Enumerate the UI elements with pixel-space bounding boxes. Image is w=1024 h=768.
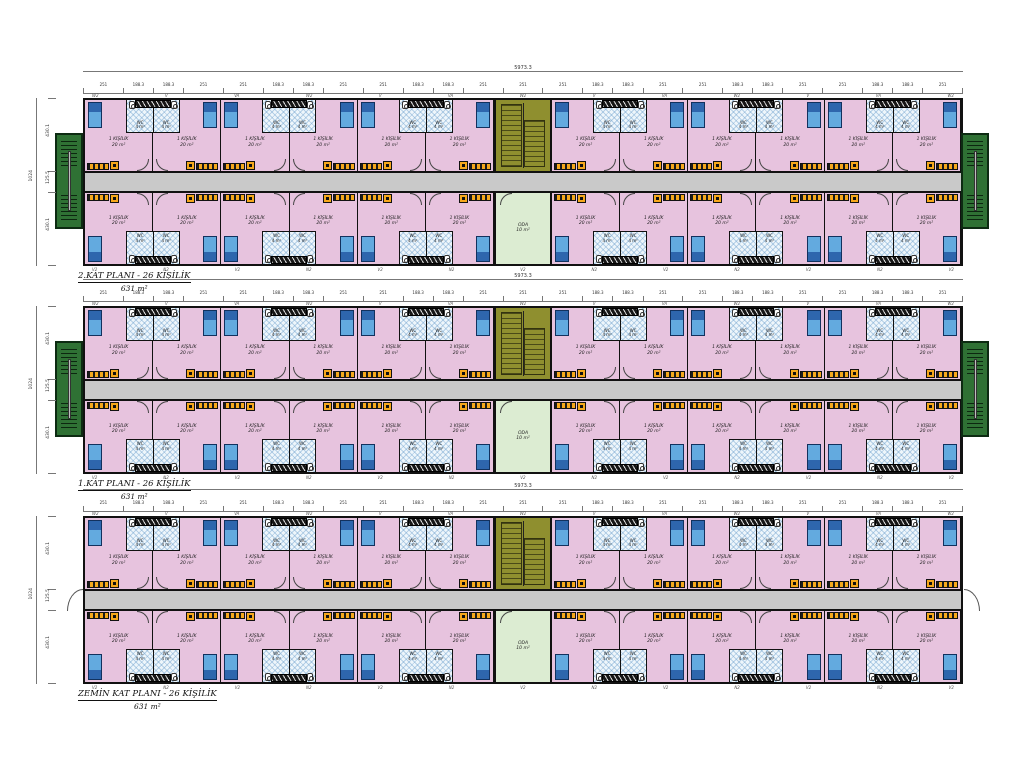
- bench-seat: [800, 402, 822, 409]
- oda-label: ODA10 m²: [496, 431, 550, 443]
- bed: [203, 520, 217, 546]
- wc-area: 4 m²: [401, 447, 425, 452]
- dimension-value: 188.3: [133, 82, 144, 87]
- room-label: 1 KİŞİLİK20 m²: [221, 424, 288, 435]
- wc-area: 4 m²: [427, 447, 451, 452]
- toilet-icon: [774, 673, 780, 681]
- desk: [713, 579, 722, 588]
- dimension-value: 188.3: [592, 500, 603, 505]
- desk: [186, 369, 195, 378]
- shared-wc-core: WC4 m²WC4 m²: [262, 231, 316, 264]
- room-door-arc: [274, 193, 286, 205]
- bench-seat: [663, 402, 685, 409]
- wall-tag: N2: [734, 475, 740, 480]
- desk: [383, 612, 392, 621]
- room-pair-module: 1 KİŞİLİK20 m²1 KİŞİLİK20 m²WC4 m²WC4 m²: [85, 518, 221, 589]
- room-area: 20 m²: [620, 561, 687, 567]
- desk: [713, 161, 722, 170]
- bed: [555, 444, 569, 470]
- desk: [459, 612, 468, 621]
- desk: [850, 194, 859, 203]
- dimension-value: 251: [479, 500, 487, 505]
- oda-room: ODA10 m²: [494, 401, 552, 472]
- bench-seat: [196, 612, 218, 619]
- bed: [555, 236, 569, 262]
- overall-height-value: 1024: [29, 588, 34, 599]
- wc-label: WC4 m²: [868, 329, 892, 338]
- room-area: 20 m²: [221, 561, 288, 567]
- desk: [110, 402, 119, 411]
- toilet-icon: [638, 673, 644, 681]
- bench-seat: [469, 612, 491, 619]
- stair-flight-left: [501, 104, 522, 167]
- room-pair-module: 1 KİŞİLİK20 m²1 KİŞİLİK20 m²WC4 m²WC4 m²: [221, 100, 357, 171]
- dimension-value: 188.3: [762, 82, 773, 87]
- wc-area: 4 m²: [621, 543, 645, 548]
- desk: [323, 402, 332, 411]
- bench-seat: [554, 581, 576, 588]
- dimension-segment: 125.5: [48, 171, 56, 193]
- bed: [691, 520, 705, 546]
- bench-seat: [554, 402, 576, 409]
- shared-wc-core: WC4 m²WC4 m²: [593, 100, 647, 133]
- room-door-arc: [623, 367, 635, 379]
- room-area: 20 m²: [620, 639, 687, 645]
- room-door-arc: [293, 367, 305, 379]
- bench-seat: [333, 371, 355, 378]
- bed: [340, 654, 354, 680]
- bed: [203, 444, 217, 470]
- bench-seat: [333, 581, 355, 588]
- bed: [555, 654, 569, 680]
- wall-tag: N2: [306, 475, 312, 480]
- wall-tag: N2: [306, 685, 312, 690]
- room-door-arc: [623, 193, 635, 205]
- bed: [476, 520, 490, 546]
- room-area: 20 m²: [756, 221, 823, 227]
- room-door-arc: [274, 577, 286, 589]
- room-label: 1 KİŞİLİK20 m²: [290, 137, 357, 148]
- wc-label: WC4 m²: [290, 234, 314, 243]
- bench-seat: [469, 194, 491, 201]
- bed: [476, 236, 490, 262]
- toilet-icon: [638, 463, 644, 471]
- bed: [555, 102, 569, 128]
- wc-label: WC4 m²: [290, 121, 314, 130]
- desk: [110, 194, 119, 203]
- wc-label: WC4 m²: [290, 329, 314, 338]
- room-pair-module: 1 KİŞİLİK20 m²1 KİŞİLİK20 m²WC4 m²WC4 m²: [85, 401, 221, 472]
- wc-label: WC4 m²: [757, 329, 781, 338]
- dimension-value: 251: [659, 500, 667, 505]
- bed: [476, 102, 490, 128]
- room-label: 1 KİŞİLİK20 m²: [552, 345, 619, 356]
- dimension-value: 188.3: [622, 290, 633, 295]
- room-pair-module: 1 KİŞİLİK20 m²1 KİŞİLİK20 m²WC4 m²WC4 m²: [688, 401, 824, 472]
- dimension-value: 188.3: [872, 500, 883, 505]
- room-pair-module: 1 KİŞİLİK20 m²1 KİŞİLİK20 m²WC4 m²WC4 m²: [221, 611, 357, 682]
- wc-area: 4 m²: [731, 125, 755, 130]
- wc-area: 4 m²: [595, 543, 619, 548]
- room-band-top: 1 KİŞİLİK20 m²1 KİŞİLİK20 m²WC4 m²WC4 m²…: [85, 308, 961, 379]
- room-label: 1 KİŞİLİK20 m²: [620, 634, 687, 645]
- desk: [850, 612, 859, 621]
- dimension-value: 430.1: [46, 542, 51, 555]
- wc-area: 4 m²: [401, 657, 425, 662]
- central-staircase: [494, 308, 552, 379]
- wc-area: 4 m²: [621, 333, 645, 338]
- bed: [340, 310, 354, 336]
- wc-label: WC4 m²: [264, 442, 288, 451]
- room-door-arc: [604, 577, 616, 589]
- desk: [926, 161, 935, 170]
- wc-label: WC4 m²: [401, 234, 425, 243]
- dimension-value: 251: [799, 82, 807, 87]
- wc-label: WC4 m²: [154, 539, 178, 548]
- wardrobe-unit: [875, 256, 911, 264]
- room-door-arc: [877, 401, 889, 413]
- room-area: 20 m²: [153, 639, 220, 645]
- desk: [790, 369, 799, 378]
- wc-area: 4 m²: [757, 543, 781, 548]
- wc-area: 4 m²: [154, 543, 178, 548]
- wc-area: 4 m²: [128, 239, 152, 244]
- room-door-arc: [410, 401, 422, 413]
- exterior-stair-tower-left: [55, 341, 83, 437]
- desk: [850, 402, 859, 411]
- shared-wc-core: WC4 m²WC4 m²: [399, 100, 453, 133]
- room-pair-module: 1 KİŞİLİK20 m²1 KİŞİLİK20 m²WC4 m²WC4 m²: [221, 193, 357, 264]
- desk: [577, 369, 586, 378]
- bed: [203, 310, 217, 336]
- room-door-arc: [759, 401, 771, 413]
- dimension-value: 188.3: [443, 82, 454, 87]
- bed: [340, 444, 354, 470]
- wardrobe-unit: [135, 308, 171, 316]
- corridor: [85, 379, 961, 401]
- wc-area: 4 m²: [621, 447, 645, 452]
- room-area: 20 m²: [688, 351, 755, 357]
- room-area: 20 m²: [290, 429, 357, 435]
- bench-seat: [196, 194, 218, 201]
- wc-label: WC4 m²: [868, 539, 892, 548]
- bed: [555, 310, 569, 336]
- bench-seat: [663, 371, 685, 378]
- wc-area: 4 m²: [868, 239, 892, 244]
- room-pair-module: 1 KİŞİLİK20 m²1 KİŞİLİK20 m²WC4 m²WC4 m²: [85, 308, 221, 379]
- desk: [383, 161, 392, 170]
- wardrobe-unit: [408, 464, 444, 472]
- bench-seat: [223, 581, 245, 588]
- wc-label: WC4 m²: [264, 121, 288, 130]
- dimension-segment: 430.1: [48, 610, 56, 684]
- dimension-value: 188.3: [163, 290, 174, 295]
- wc-area: 4 m²: [401, 333, 425, 338]
- wall-tag: V2: [806, 685, 811, 690]
- floor-plan-1: 5973.3251188.3188.3251251188.3188.325125…: [0, 271, 1024, 503]
- room-area: 20 m²: [688, 143, 755, 149]
- room-door-arc: [623, 577, 635, 589]
- wc-area: 4 m²: [264, 125, 288, 130]
- room-pair-module: 1 KİŞİLİK20 m²1 KİŞİLİK20 m²WC4 m²WC4 m²: [358, 401, 494, 472]
- room-pair-module: 1 KİŞİLİK20 m²1 KİŞİLİK20 m²WC4 m²WC4 m²: [552, 193, 688, 264]
- wall-tag: V2: [235, 475, 240, 480]
- wc-area: 4 m²: [128, 543, 152, 548]
- wall-tag: V2: [520, 475, 525, 480]
- room-label: 1 KİŞİLİK20 m²: [620, 137, 687, 148]
- bed: [224, 102, 238, 128]
- bench-seat: [87, 194, 109, 201]
- wc-area: 4 m²: [757, 239, 781, 244]
- bed: [203, 236, 217, 262]
- bench-seat: [827, 371, 849, 378]
- wc-area: 4 m²: [290, 333, 314, 338]
- desk: [713, 612, 722, 621]
- wall-tag: N2: [592, 475, 598, 480]
- wall-tag: N2: [877, 475, 883, 480]
- wc-label: WC4 m²: [595, 329, 619, 338]
- room-door-arc: [293, 577, 305, 589]
- room-label: 1 KİŞİLİK20 m²: [290, 634, 357, 645]
- bench-seat: [223, 194, 245, 201]
- dimension-value: 188.3: [592, 290, 603, 295]
- toilet-icon: [307, 309, 313, 317]
- bed: [807, 236, 821, 262]
- entrance-door-left: [67, 589, 83, 611]
- desk: [186, 161, 195, 170]
- dimension-value: 251: [200, 82, 208, 87]
- top-overall-dimension: 5973.3: [83, 279, 963, 280]
- exterior-stair-tower-left: [55, 133, 83, 229]
- desk: [246, 612, 255, 621]
- bed: [943, 102, 957, 128]
- room-label: 1 KİŞİLİK20 m²: [893, 634, 960, 645]
- stair-flight-left: [501, 312, 522, 375]
- room-area: 20 m²: [688, 429, 755, 435]
- desk: [323, 579, 332, 588]
- dimension-value: 188.3: [443, 290, 454, 295]
- central-staircase: [494, 100, 552, 171]
- wc-label: WC4 m²: [154, 652, 178, 661]
- shared-wc-core: WC4 m²WC4 m²: [126, 100, 180, 133]
- stair-flight-right: [524, 328, 545, 375]
- wc-area: 4 m²: [731, 543, 755, 548]
- room-area: 20 m²: [358, 561, 425, 567]
- bed: [807, 102, 821, 128]
- shared-wc-core: WC4 m²WC4 m²: [126, 649, 180, 682]
- wc-label: WC4 m²: [128, 234, 152, 243]
- room-door-arc: [877, 193, 889, 205]
- bench-seat: [554, 612, 576, 619]
- desk: [323, 369, 332, 378]
- wc-area: 4 m²: [427, 125, 451, 130]
- corridor: [85, 171, 961, 193]
- wc-area: 4 m²: [401, 239, 425, 244]
- desk: [653, 402, 662, 411]
- wc-area: 4 m²: [290, 239, 314, 244]
- dimension-value: 188.3: [273, 82, 284, 87]
- desk: [926, 579, 935, 588]
- left-overall-dimension: 1024: [36, 98, 37, 266]
- room-door-arc: [604, 159, 616, 171]
- wardrobe-unit: [271, 256, 307, 264]
- room-door-arc: [137, 193, 149, 205]
- wc-label: WC4 m²: [128, 539, 152, 548]
- wall-tag: N2: [877, 685, 883, 690]
- room-label: 1 KİŞİLİK20 m²: [688, 634, 755, 645]
- room-area: 20 m²: [552, 639, 619, 645]
- shared-wc-core: WC4 m²WC4 m²: [593, 439, 647, 472]
- oda-room: ODA10 m²: [494, 193, 552, 264]
- desk: [246, 579, 255, 588]
- room-area: 20 m²: [358, 221, 425, 227]
- room-pair-module: 1 KİŞİLİK20 m²1 KİŞİLİK20 m²WC4 m²WC4 m²: [825, 193, 961, 264]
- dimension-value: 251: [340, 82, 348, 87]
- overall-width-value: 5973.3: [512, 483, 534, 489]
- room-label: 1 KİŞİLİK20 m²: [85, 137, 152, 148]
- room-door-arc: [410, 159, 422, 171]
- bench-seat: [360, 163, 382, 170]
- desk: [186, 194, 195, 203]
- bench-seat: [196, 163, 218, 170]
- desk: [577, 402, 586, 411]
- room-door-arc: [740, 577, 752, 589]
- floor-plan-2: 5973.3251188.3188.3251251188.3188.325125…: [0, 481, 1024, 713]
- wall-tag: N2: [449, 475, 455, 480]
- toilet-icon: [638, 101, 644, 109]
- room-pair-module: 1 KİŞİLİK20 m²1 KİŞİLİK20 m²WC4 m²WC4 m²: [552, 611, 688, 682]
- dimension-value: 188.3: [762, 290, 773, 295]
- room-area: 20 m²: [756, 351, 823, 357]
- left-overall-dimension: 1024: [36, 516, 37, 684]
- room-pair-module: 1 KİŞİLİK20 m²1 KİŞİLİK20 m²WC4 m²WC4 m²: [358, 308, 494, 379]
- wc-label: WC4 m²: [154, 329, 178, 338]
- bench-seat: [936, 163, 958, 170]
- dimension-value: 188.3: [303, 500, 314, 505]
- dimension-segment: 430.1: [48, 400, 56, 474]
- wall-tag: V2: [949, 475, 954, 480]
- shared-wc-core: WC4 m²WC4 m²: [729, 100, 783, 133]
- desk: [110, 369, 119, 378]
- bed: [224, 236, 238, 262]
- toilet-icon: [774, 255, 780, 263]
- wc-area: 4 m²: [290, 125, 314, 130]
- room-area: 20 m²: [893, 143, 960, 149]
- desk: [790, 579, 799, 588]
- bed: [555, 520, 569, 546]
- wc-area: 4 m²: [595, 447, 619, 452]
- dimension-value: 188.3: [163, 500, 174, 505]
- bed: [476, 310, 490, 336]
- desk: [577, 612, 586, 621]
- dimension-value: 188.3: [732, 82, 743, 87]
- dimension-value: 251: [340, 290, 348, 295]
- wardrobe-unit: [602, 256, 638, 264]
- bench-seat: [469, 581, 491, 588]
- wardrobe-unit: [738, 256, 774, 264]
- wc-area: 4 m²: [894, 333, 918, 338]
- bench-seat: [87, 581, 109, 588]
- bed: [943, 236, 957, 262]
- wardrobe-unit: [135, 674, 171, 682]
- dimension-value: 251: [839, 500, 847, 505]
- room-label: 1 KİŞİLİK20 m²: [290, 216, 357, 227]
- wc-area: 4 m²: [128, 657, 152, 662]
- wc-area: 4 m²: [868, 543, 892, 548]
- bed: [828, 444, 842, 470]
- room-label: 1 KİŞİLİK20 m²: [358, 555, 425, 566]
- bench-seat: [827, 581, 849, 588]
- bed: [691, 444, 705, 470]
- room-label: 1 KİŞİLİK20 m²: [358, 216, 425, 227]
- dimension-value: 430.1: [46, 218, 51, 231]
- dimension-value: 430.1: [46, 332, 51, 345]
- wardrobe-unit: [738, 518, 774, 526]
- bed: [828, 102, 842, 128]
- room-area: 20 m²: [756, 561, 823, 567]
- stair-rail: [68, 359, 71, 419]
- room-band-bottom: 1 KİŞİLİK20 m²1 KİŞİLİK20 m²WC4 m²WC4 m²…: [85, 401, 961, 472]
- room-door-arc: [156, 401, 168, 413]
- wc-area: 4 m²: [290, 657, 314, 662]
- room-label: 1 KİŞİLİK20 m²: [153, 137, 220, 148]
- bed: [476, 444, 490, 470]
- room-label: 1 KİŞİLİK20 m²: [426, 216, 493, 227]
- dimension-value: 188.3: [872, 82, 883, 87]
- wc-label: WC4 m²: [731, 539, 755, 548]
- shared-wc-core: WC4 m²WC4 m²: [399, 231, 453, 264]
- room-label: 1 KİŞİLİK20 m²: [756, 137, 823, 148]
- room-door-arc: [137, 367, 149, 379]
- wc-area: 4 m²: [290, 543, 314, 548]
- room-area: 20 m²: [688, 221, 755, 227]
- room-area: 20 m²: [688, 561, 755, 567]
- room-area: 20 m²: [85, 561, 152, 567]
- shared-wc-core: WC4 m²WC4 m²: [729, 231, 783, 264]
- shared-wc-core: WC4 m²WC4 m²: [399, 308, 453, 341]
- toilet-icon: [307, 101, 313, 109]
- room-door-arc: [604, 367, 616, 379]
- wall-tag: V2: [378, 685, 383, 690]
- dimension-value: 251: [379, 82, 387, 87]
- shared-wc-core: WC4 m²WC4 m²: [262, 518, 316, 551]
- room-label: 1 KİŞİLİK20 m²: [688, 345, 755, 356]
- room-door-arc: [759, 367, 771, 379]
- room-area: 20 m²: [426, 221, 493, 227]
- dimension-value: 251: [559, 82, 567, 87]
- dimension-value: 251: [659, 82, 667, 87]
- bed: [943, 520, 957, 546]
- shared-wc-core: WC4 m²WC4 m²: [262, 100, 316, 133]
- room-door-arc: [156, 367, 168, 379]
- wc-label: WC4 m²: [757, 234, 781, 243]
- dimension-value: 188.3: [273, 290, 284, 295]
- dimension-value: 251: [200, 290, 208, 295]
- room-pair-module: 1 KİŞİLİK20 m²1 KİŞİLİK20 m²WC4 m²WC4 m²: [688, 518, 824, 589]
- room-area: 20 m²: [221, 639, 288, 645]
- shared-wc-core: WC4 m²WC4 m²: [866, 100, 920, 133]
- bed: [361, 520, 375, 546]
- desk: [926, 369, 935, 378]
- shared-wc-core: WC4 m²WC4 m²: [262, 649, 316, 682]
- room-door-arc: [410, 577, 422, 589]
- dimension-value: 188.3: [443, 500, 454, 505]
- desk: [713, 369, 722, 378]
- toilet-icon: [638, 255, 644, 263]
- room-label: 1 KİŞİLİK20 m²: [153, 345, 220, 356]
- entrance-door-right: [964, 589, 980, 611]
- room-area: 20 m²: [153, 429, 220, 435]
